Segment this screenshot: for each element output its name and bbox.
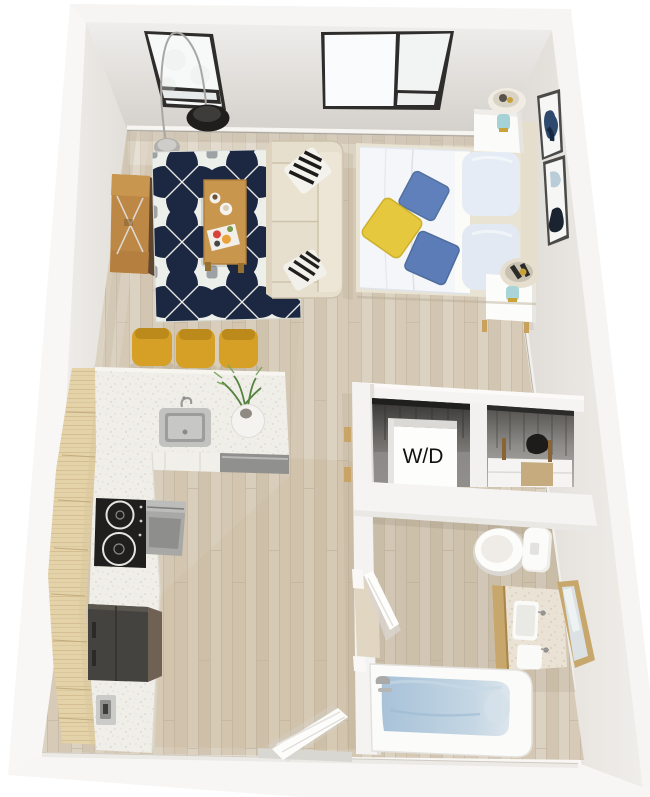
svg-text:W/D: W/D — [403, 445, 444, 468]
